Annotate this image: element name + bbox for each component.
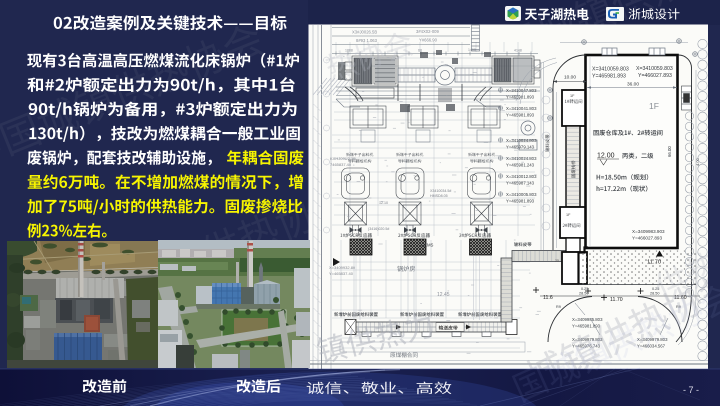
svg-text:(3416)020.5#: (3416)020.5# [368,227,389,231]
svg-text:X=3410012.803: X=3410012.803 [506,174,537,179]
svg-text:66.00: 66.00 [667,146,672,157]
svg-text:Y=466027.893: Y=466027.893 [632,236,662,241]
svg-text:HMSD8.05: HMSD8.05 [430,194,448,198]
svg-text:4148: 4148 [514,49,522,53]
svg-text:3#4X02-009: 3#4X02-009 [416,29,439,34]
svg-text:Y=465981.893: Y=465981.893 [506,199,535,204]
svg-text:Y=465981.893: Y=465981.893 [592,74,626,80]
svg-text:1F: 1F [649,101,659,111]
svg-text:10.00: 10.00 [564,75,576,81]
svg-text:12.45: 12.45 [437,292,450,298]
svg-text:1F: 1F [566,213,571,217]
svg-text:11.70: 11.70 [610,297,623,303]
svg-text:Y=465981.893: Y=465981.893 [506,95,535,100]
svg-text:CEMS: CEMS [421,243,434,248]
svg-text:X3#J0026.5B: X3#J0026.5B [352,30,377,35]
svg-text:KXHJ09U2.3B: KXHJ09U2.3B [330,156,356,161]
svg-text:0.25: 0.25 [581,287,588,291]
svg-text:36.00: 36.00 [627,82,639,88]
svg-text:28.50: 28.50 [579,292,589,296]
svg-text:X=3410005.803: X=3410005.803 [506,192,537,197]
svg-text:X=3410059.803: X=3410059.803 [592,67,629,73]
svg-text:Y=465981.893: Y=465981.893 [506,113,535,118]
svg-text:28.50: 28.50 [650,292,660,296]
svg-text:Y=465979.143: Y=465979.143 [506,145,535,150]
svg-text:25: 25 [555,259,559,263]
svg-text:68: 68 [418,49,422,53]
svg-text:1F: 1F [570,94,575,98]
svg-text:11.70: 11.70 [647,260,661,266]
svg-text:Y=465981.243: Y=465981.243 [506,163,535,168]
svg-text:- 7 -: - 7 - [683,385,699,395]
svg-text:X=3410041.803: X=3410041.803 [506,106,537,111]
svg-text:X=3409985.803: X=3409985.803 [572,317,603,322]
svg-text:1888: 1888 [345,49,353,53]
svg-text:Y=466027.893: Y=466027.893 [638,73,672,79]
svg-text:11.6: 11.6 [543,295,553,301]
svg-text:X=3410059.803: X=3410059.803 [636,66,673,72]
svg-text:Y=465981.893: Y=465981.893 [572,324,601,329]
svg-text:1488: 1488 [468,48,476,52]
svg-text:X=3410047.803: X=3410047.803 [506,88,537,93]
svg-text:X3410034.5#: X3410034.5# [430,189,451,193]
svg-text:R9: R9 [556,305,561,309]
svg-text:Y=465987.143: Y=465987.143 [506,181,535,186]
svg-text:7465837.40: 7465837.40 [330,162,352,167]
svg-text:Y#666.90: Y#666.90 [419,38,438,43]
svg-text:X=3409983.903: X=3409983.903 [632,229,665,234]
svg-text:Y=465837.40: Y=465837.40 [329,271,354,276]
svg-text:X=3410024.803: X=3410024.803 [506,156,537,161]
svg-text:12.00: 12.00 [597,153,615,160]
svg-text:X=3410024.803: X=3410024.803 [506,138,537,143]
